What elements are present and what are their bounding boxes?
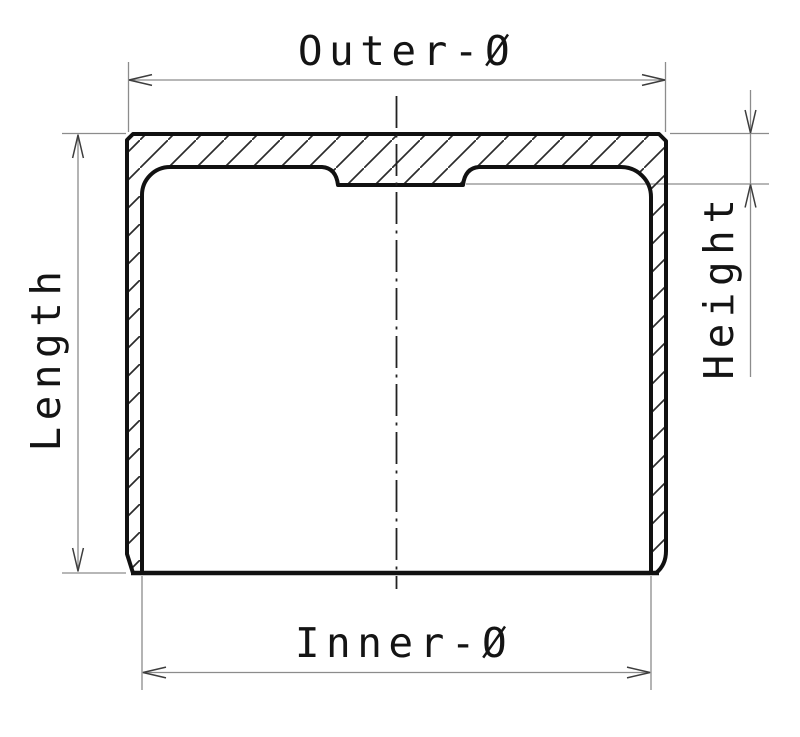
technical-drawing: Outer-Ø Inner-Ø Length Height [0,0,800,737]
drawing-canvas: Outer-Ø Inner-Ø Length Height [0,0,800,737]
inner-diameter-label: Inner-Ø [295,619,513,667]
length-label: Length [22,264,70,451]
outer-diameter-label: Outer-Ø [298,27,516,75]
height-label: Height [695,192,743,379]
